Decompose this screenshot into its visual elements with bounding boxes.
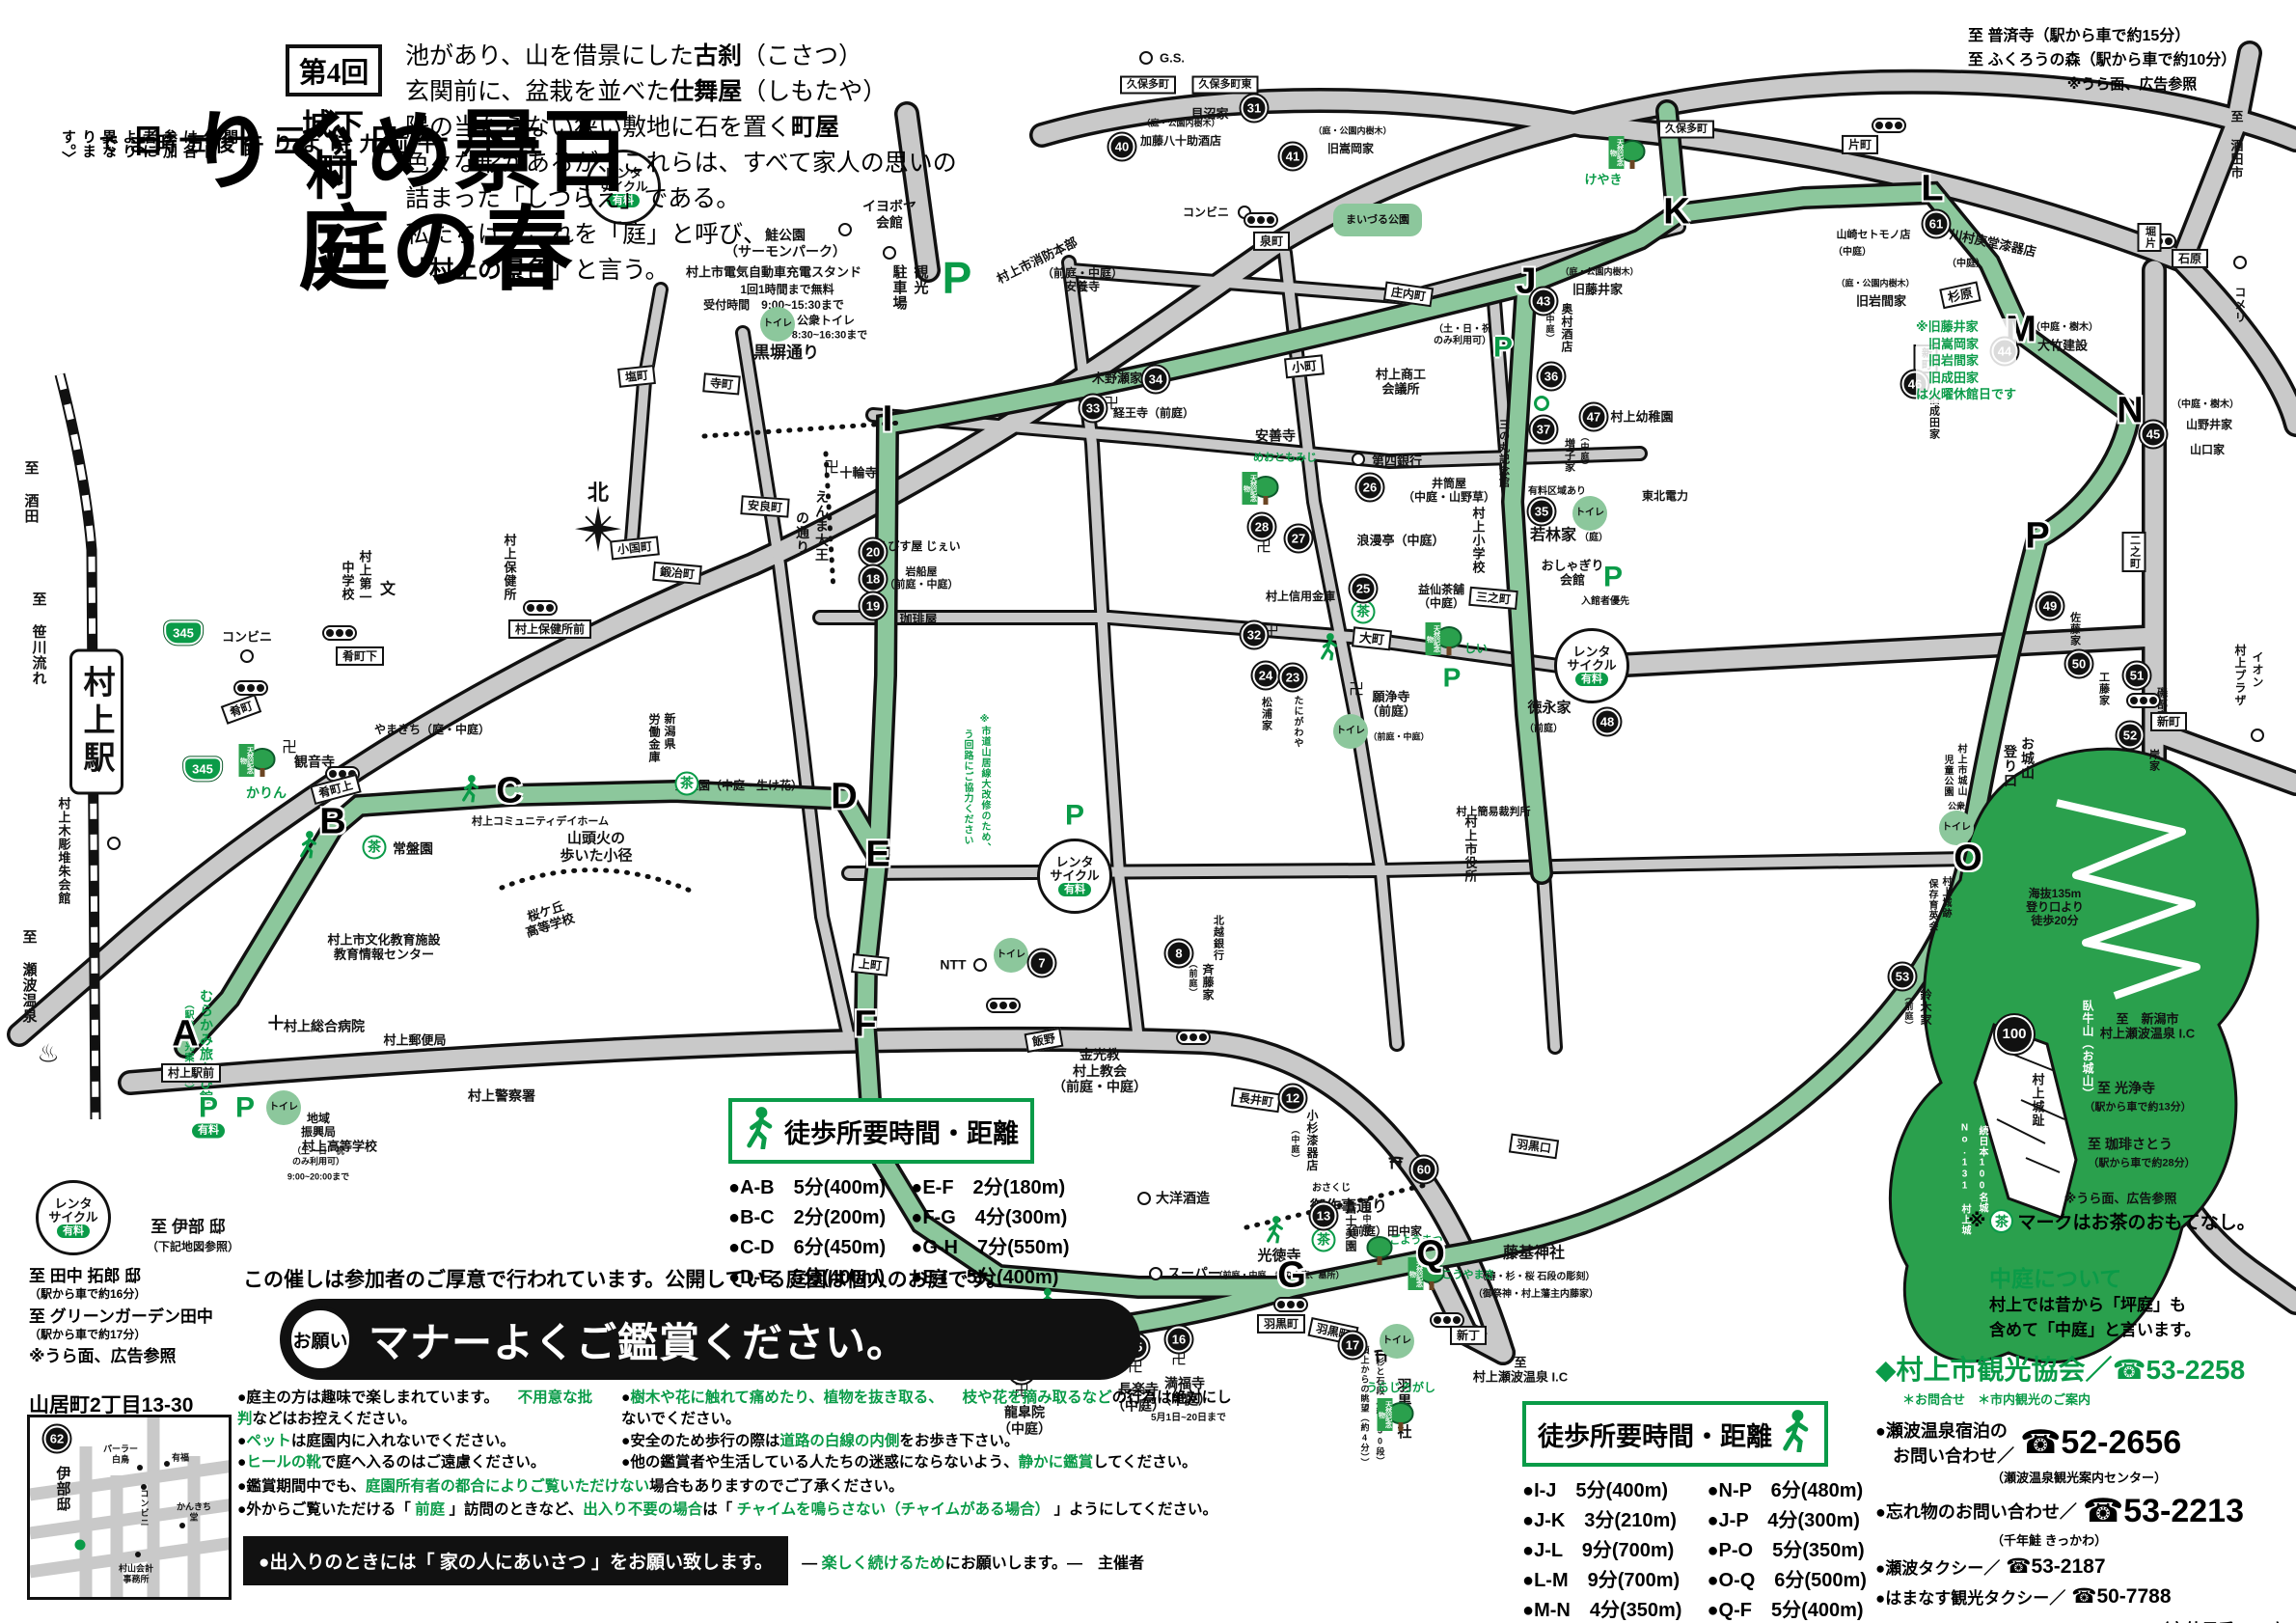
map-label: コンビニ <box>1183 206 1229 219</box>
road-sign: 三之町 <box>1468 587 1518 610</box>
map-label: 村上市文化教育施設 教育情報センター <box>327 933 440 963</box>
road-sign: 安良町 <box>740 495 789 518</box>
map-label: （前庭） <box>1524 724 1563 735</box>
map-label-green: かりん <box>246 785 287 802</box>
walk-time-entry: ●P-O 5分(350m) <box>1707 1536 1866 1566</box>
hot-spring-icon: ♨ <box>37 1039 59 1069</box>
road-sign: 鍛冶町 <box>652 562 702 585</box>
route-point-P: P <box>2025 515 2049 559</box>
map-label: 続日本100名城 <box>1977 1126 1986 1214</box>
map-label: 村上コミュニティデイホーム <box>472 816 609 829</box>
map-label: 至 笹川流れ <box>32 591 46 686</box>
map-label: 大竹建設 <box>2037 338 2088 352</box>
route-point-B: B <box>319 801 345 844</box>
left-access-notes: 至 田中 拓郎 邸（駅から車で約16分）至 グリーンガーデン田中（駅から車で約1… <box>29 1266 213 1367</box>
map-label: （庭・公園内樹木） <box>1141 119 1219 129</box>
site-marker-60: 60 <box>1411 1157 1437 1183</box>
map-label: 安善寺 <box>1255 428 1296 445</box>
route-point-C: C <box>496 770 522 813</box>
poi-circle <box>107 837 121 850</box>
map-label-green: むらかみ旅なび館 <box>200 989 213 1105</box>
map-label: 至 伊部 邸 <box>150 1218 225 1237</box>
walker-icon <box>1319 632 1340 666</box>
map-label: 村上郵便局 <box>383 1032 446 1047</box>
site-marker-32: 32 <box>1242 622 1268 648</box>
toilet-icon: トイレ <box>266 1090 301 1125</box>
map-label: コンビニ <box>140 1489 149 1527</box>
access-note: （駅から車で約16分） <box>29 1287 213 1303</box>
map-label: 村上城趾 <box>2032 1073 2044 1127</box>
poi-circle <box>240 649 254 663</box>
map-label: 至 村上瀬波温泉 I.C <box>1473 1356 1568 1386</box>
contact-block: ◆村上市観光協会／☎53-2258 ＊お問合せ ＊市内観光のご案内 ●瀬波温泉宿… <box>1875 1349 2292 1623</box>
site-marker-18: 18 <box>861 566 887 592</box>
greeting-footer: ●出入りのときには「 家の人にあいさつ 」をお願い致します。 ― 楽しく続けるた… <box>243 1536 1144 1585</box>
route-point-D: D <box>831 776 857 819</box>
map-label: 村上城跡 <box>1940 876 1950 919</box>
walk-time-entry: ●J-P 4分(300m) <box>1707 1506 1866 1536</box>
association-name: 村上市観光協会／ <box>1897 1355 2113 1385</box>
temple-icon: 卍 <box>1171 1352 1187 1370</box>
map-label: 至 酒田 <box>24 460 39 524</box>
tree-icon: 天然記念物 <box>1253 476 1279 505</box>
site-marker-17: 17 <box>1340 1333 1366 1359</box>
poi-circle <box>2233 256 2247 269</box>
map-label: 加藤八十助酒店 <box>1140 134 1221 148</box>
map-label: 鈴木家 <box>1920 989 1931 1027</box>
map-label: 労働金庫 <box>648 713 660 763</box>
route-point-F: F <box>854 1004 876 1047</box>
contact-row: ●瀬波タクシー／☎53-2187 <box>1875 1554 2292 1579</box>
map-label: 斉藤家 <box>1202 964 1214 1002</box>
poi-circle <box>1139 51 1153 65</box>
toilet-icon: トイレ <box>1380 1324 1414 1359</box>
map-label: 大洋酒造 <box>1156 1191 1210 1207</box>
tea-note-text: マークはお茶のおもてなし。 <box>2017 1208 2255 1234</box>
route-point-N: N <box>2117 390 2143 433</box>
traffic-signal-icon <box>1176 1030 1211 1045</box>
map-label: 村上簡易裁判所 <box>1457 807 1531 819</box>
route-point-E: E <box>865 834 889 877</box>
tree-icon: 天然記念物 <box>1388 1402 1414 1431</box>
site-marker-50: 50 <box>2066 651 2092 677</box>
map-label: 三の丸記念館 <box>1498 419 1509 488</box>
site-marker-28: 28 <box>1249 514 1275 540</box>
walk-time-entry: ●B-C 2分(200m) <box>728 1203 886 1233</box>
site-marker-23: 23 <box>1280 665 1306 691</box>
walk-time-legend-2: 徒歩所要時間・距離 ●I-J 5分(400m)●J-K 3分(210m)●J-L… <box>1522 1401 1867 1623</box>
site-marker-7: 7 <box>1029 950 1055 977</box>
map-label: 村上信用金庫 <box>1266 590 1335 603</box>
route-point-K: K <box>1663 191 1689 234</box>
map-label: 旧嵩岡家 <box>1327 142 1374 155</box>
torii-icon <box>1388 1156 1405 1176</box>
walk-time-entry: ●N-P 6分(480m) <box>1707 1476 1866 1506</box>
school-icon: 文 <box>380 582 396 600</box>
traffic-signal-icon <box>2126 693 2161 708</box>
map-label: 村上第一 <box>359 550 371 604</box>
walk-time-entry: ●M-N 4分(350m) <box>1522 1596 1681 1623</box>
map-label: 若林家 <box>1530 528 1576 546</box>
map-label: 浪漫亭（中庭） <box>1356 533 1444 547</box>
manner-banner: お願い マナーよくご鑑賞ください。 <box>280 1299 1140 1380</box>
poi-circle <box>1352 453 1365 466</box>
road-sign: 肴町下 <box>336 646 384 666</box>
intro-paragraph: 池があり、山を借景にした古刹（こさつ）玄関前に、盆栽を並べた仕舞屋（しもたや）陽… <box>405 39 1023 289</box>
map-label: おさくじ <box>1312 1183 1351 1195</box>
toilet-icon: トイレ <box>994 938 1028 973</box>
tea-service-icon: 茶 <box>675 772 699 796</box>
organizer-note: ― 楽しく続けるためにお願いします。― 主催者 <box>802 1550 1144 1573</box>
traffic-signal-icon <box>523 600 558 616</box>
parking-icon: P <box>1443 661 1462 693</box>
location-dot <box>75 1540 86 1551</box>
road-sign: 堀片 <box>2138 223 2162 252</box>
site-marker-13: 13 <box>1311 1203 1337 1229</box>
map-label: （前庭） <box>1189 959 1197 998</box>
road-sign: 片町 <box>1842 135 1878 154</box>
map-label: （中庭・樹木） <box>2172 399 2239 411</box>
street-name-label: 黒塀通り <box>753 344 819 363</box>
traffic-signal-icon <box>1244 212 1278 228</box>
inset-map: 62伊部邸パーラー 白鳥有福コンビニかんきち堂村山会計 事務所 <box>27 1415 232 1600</box>
site-marker-24: 24 <box>1253 663 1279 689</box>
road-sign: 村上駅前 <box>161 1063 221 1083</box>
poi-dot <box>135 1552 141 1557</box>
banner-text: マナーよくご鑑賞ください。 <box>369 1310 908 1369</box>
site-marker-53: 53 <box>1890 964 1916 990</box>
map-label: 松浦家 <box>1261 697 1271 731</box>
poi-dot <box>164 1461 170 1467</box>
site-marker-49: 49 <box>2037 593 2064 619</box>
tea-service-icon: 茶 <box>1312 1228 1336 1252</box>
map-label: 山崎セトモノ店 <box>1837 230 1911 242</box>
legend-title: 徒歩所要時間・距離 <box>784 1113 1019 1150</box>
map-label-green: こうやまき <box>1442 1270 1495 1282</box>
map-label: （中庭） <box>1580 432 1589 471</box>
request-badge: お願い <box>287 1307 353 1372</box>
site-marker-19: 19 <box>861 593 887 619</box>
route-shield: 345 <box>183 756 222 781</box>
map-label: 北越銀行 <box>1213 915 1223 961</box>
tea-note-prefix: ※ <box>1968 1210 1985 1232</box>
map-label-green: しい <box>1464 642 1488 655</box>
area-code: 〈市外局番 0254〉 <box>1875 1616 2292 1623</box>
site-marker-52: 52 <box>2118 723 2144 749</box>
map-label: やまきち（庭・中庭） <box>374 723 490 736</box>
route-point-A: A <box>172 1013 198 1057</box>
site-marker-31: 31 <box>1242 96 1268 122</box>
event-hours-note: 〈時間・休日は各参加者により異なります。〉 <box>58 129 260 166</box>
tree-icon: 天然記念物 <box>1436 626 1462 655</box>
contact-row: ●瀬波温泉宿泊の お問い合わせ／☎52-2656（瀬波温泉観光案内センター） <box>1875 1417 2292 1486</box>
site-marker-35: 35 <box>1529 499 1555 525</box>
site-marker-61: 61 <box>1924 211 1950 237</box>
map-label: 至 珈琲さとう <box>2088 1137 2173 1153</box>
walk-time-entry: ●G-H 7分(550m) <box>911 1233 1069 1263</box>
map-label: 村上高等学校 <box>302 1139 377 1153</box>
map-label: 至 光浄寺 <box>2097 1081 2155 1097</box>
road-sign: 泉町 <box>1253 232 1290 251</box>
map-label: （前庭・中庭） <box>1368 732 1429 743</box>
walker-icon <box>1265 1215 1286 1249</box>
map-label: 第四銀行 <box>1372 454 1422 468</box>
map-label: ※うら面、広告参照 <box>2064 1191 2177 1205</box>
map-label: 村上総合病院 <box>284 1019 365 1035</box>
site-marker-41: 41 <box>1280 144 1306 170</box>
road-sign: 石原 <box>2172 249 2208 268</box>
map-label: 新潟県 <box>664 713 675 751</box>
site-marker-12: 12 <box>1280 1086 1306 1112</box>
site-marker-48: 48 <box>1595 709 1621 735</box>
map-label: 村上警察署 <box>468 1088 535 1105</box>
traffic-signal-icon <box>1872 118 1906 133</box>
map-label: （庭） <box>1579 533 1608 544</box>
map-label: 公衆トイレ <box>797 314 855 327</box>
map-label: 有福 <box>172 1453 189 1464</box>
walker-icon <box>298 830 319 864</box>
map-label: かんきち堂 <box>177 1501 211 1522</box>
walk-time-entry: ●I-J 5分(400m) <box>1522 1476 1681 1506</box>
parking-icon: P <box>1493 330 1513 364</box>
temple-icon: 卍 <box>824 460 839 479</box>
map-label: 中学校 <box>342 561 354 601</box>
toilet-icon: トイレ <box>760 307 795 342</box>
map-label: NTT <box>940 957 966 974</box>
walker-icon <box>1780 1409 1813 1459</box>
map-label: （中庭） <box>1947 259 1985 270</box>
map-label-green: めおともみじ <box>1253 453 1317 465</box>
map-label-green: ※市道山居線大改修のため、 <box>979 714 989 853</box>
map-label: 至 瀬波温泉 <box>22 929 37 1024</box>
map-label: 100 <box>1995 1015 2034 1054</box>
road-sign: 新丁 <box>1450 1326 1487 1345</box>
walk-time-entry: ●O-Q 6分(500m) <box>1707 1566 1866 1596</box>
diamond-icon: ◆ <box>1875 1355 1897 1385</box>
street-name-label: えんま大王 <box>815 490 829 563</box>
site-marker-25: 25 <box>1351 576 1377 602</box>
map-label: （駅から車で約13分） <box>2084 1102 2191 1114</box>
map-label: 井筒屋 （中庭・山野草） <box>1403 477 1495 504</box>
access-note: 至 田中 拓郎 邸 <box>29 1266 213 1287</box>
map-label: 金光教 村上教会 （前庭・中庭） <box>1052 1047 1147 1095</box>
walk-time-entry: ●F-G 4分(300m) <box>911 1203 1069 1233</box>
road-sign: 村上保健所前 <box>508 619 591 639</box>
access-note: 至 普済寺（駅から車で約15分） <box>1968 25 2296 49</box>
map-label: 山野井家 <box>2186 418 2232 431</box>
site-marker-45: 45 <box>2141 422 2167 448</box>
map-label: 増子家 <box>1564 438 1574 473</box>
road-sign: 上町 <box>851 953 889 977</box>
poi-circle <box>1149 1267 1162 1280</box>
map-label: 8:30~16:30まで <box>792 330 868 343</box>
route-shield: 345 <box>164 620 203 645</box>
murakami-spring-garden-map: 至 酒田至 笹川流れ至 瀬波温泉♨村上駅村上木彫堆朱会館むらかみ旅なび館（駅前観… <box>0 0 2296 1623</box>
road-sign: 小町 <box>1284 354 1325 378</box>
walk-time-entry: ●C-D 6分(450m) <box>728 1233 886 1263</box>
road-sign: 久保多町 <box>1658 121 1714 139</box>
map-label: 冨士美園 <box>1345 1202 1356 1252</box>
toilet-icon: トイレ <box>1572 496 1607 531</box>
street-name-label: 山頭火の 歩いた小径 <box>560 830 632 864</box>
map-label: 東北電力 <box>1642 489 1688 503</box>
map-label: えびす屋 じぇい <box>876 539 960 553</box>
site-marker-8: 8 <box>1166 941 1192 967</box>
parking-icon: P <box>199 1090 218 1124</box>
site-marker-33: 33 <box>1080 396 1107 422</box>
tea-service-icon: 茶 <box>363 836 387 860</box>
site-marker-20: 20 <box>861 539 887 565</box>
access-note: 至 グリーンガーデン田中 <box>29 1307 213 1328</box>
site-marker-62: 62 <box>44 1426 70 1452</box>
site-marker-26: 26 <box>1357 475 1383 501</box>
road-sign: 久保多町東 <box>1192 76 1259 95</box>
map-label: 村上市役所 <box>1464 815 1477 883</box>
parking-icon: P <box>1065 798 1084 832</box>
station-label: 村上駅 <box>69 649 123 795</box>
top-right-access-notes: 至 普済寺（駅から車で約15分）至 ふくろうの森（駅から車で約10分）※うら面、… <box>1968 25 2296 96</box>
rental-cycle-badge: レンタサイクル有料 <box>36 1180 111 1255</box>
parking-icon: P <box>235 1090 255 1124</box>
tuesday-closed-note: ※旧藤井家 旧嵩岡家 旧岩間家 旧成田家は火曜休館日です <box>1916 318 2016 403</box>
temple-icon: 卍 <box>1256 539 1271 558</box>
fee-badge: 有料 <box>192 1124 225 1139</box>
association-sub: ＊お問合せ ＊市内観光のご案内 <box>1902 1389 2292 1408</box>
road-sign: 新町 <box>2150 712 2187 731</box>
route-point-G: G <box>1277 1254 1306 1298</box>
access-note: （駅から車で約17分） <box>29 1328 213 1343</box>
greeting-box: ●出入りのときには「 家の人にあいさつ 」をお願い致します。 <box>243 1536 788 1585</box>
map-label: 村上保健所 <box>504 534 516 601</box>
map-label: 9:00~20:00まで <box>287 1172 349 1183</box>
map-label: 木野瀬家 <box>1092 371 1142 385</box>
poi-circle <box>1137 1192 1151 1205</box>
map-label: G.S. <box>1160 50 1185 65</box>
poi-dot <box>137 1465 143 1471</box>
tree-icon: 天然記念物 <box>250 748 276 777</box>
map-label-green: うらじろがし <box>1366 1381 1435 1394</box>
road-sign: 塩町 <box>617 365 656 388</box>
map-label: 常盤園 <box>393 841 433 858</box>
traffic-signal-icon <box>986 998 1021 1013</box>
map-label-green: けやき <box>1584 172 1622 186</box>
map-label: 奥村酒店 <box>1561 303 1572 353</box>
poi-dot <box>179 1523 185 1528</box>
map-label: 村上小学校 <box>1472 507 1485 574</box>
map-label: 徳永家 <box>1527 700 1571 717</box>
map-label: （中庭） <box>1291 1125 1299 1164</box>
map-label: 村上幼稚園 <box>1610 409 1673 424</box>
map-label: 有料区域あり <box>1528 486 1586 498</box>
event-notice: この催しは参加者のご厚意で行われています。公開している庭園は個人のお庭です。 <box>243 1264 1007 1293</box>
map-label: コンビニ <box>222 629 272 644</box>
map-label: 藤基神社 <box>1503 1246 1565 1264</box>
map-label: （庭・公園内樹木） <box>1313 126 1391 137</box>
road-sign: 大町 <box>1352 626 1392 650</box>
map-label: 村上市城山 <box>1955 744 1965 797</box>
site-marker-27: 27 <box>1286 526 1312 552</box>
map-label: たにがわや <box>1292 696 1301 749</box>
map-label: パーラー 白鳥 <box>103 1444 138 1464</box>
map-label: 山口家 <box>2190 443 2225 456</box>
tea-mark-note: ※ 茶 マークはお茶のおもてなし。 <box>1968 1208 2255 1234</box>
walk-time-entry: ●J-K 3分(210m) <box>1522 1506 1681 1536</box>
walker-icon <box>744 1106 777 1156</box>
site-marker-36: 36 <box>1539 364 1565 390</box>
map-label: （中庭） <box>1833 247 1872 259</box>
map-label: 経王寺（前庭） <box>1113 406 1194 420</box>
chuniwa-body: 村上では昔から「坪庭」も 含めて「中庭」と言います。 <box>1989 1293 2200 1342</box>
map-label: 益仙茶舗 （中庭） <box>1418 583 1464 610</box>
map-label: イオン <box>2252 651 2263 689</box>
hospital-icon: ＋ <box>266 1013 286 1036</box>
map-label: （庭・公園内樹木） <box>1560 267 1638 278</box>
map-label: 入館者優先 <box>1581 596 1629 608</box>
map-label: 願浄寺 （前庭） <box>1366 690 1416 720</box>
parking-icon: P <box>1603 560 1623 593</box>
traffic-signal-icon <box>1273 1297 1308 1312</box>
map-label: 岸家 <box>2148 749 2159 772</box>
street-name-label: の通り <box>796 511 809 555</box>
tea-service-icon: 茶 <box>1352 600 1376 624</box>
map-label: （中庭・樹木） <box>2031 322 2098 334</box>
tea-service-icon: 茶 <box>1989 1209 2013 1233</box>
site-marker-51: 51 <box>2124 663 2150 689</box>
traffic-signal-icon <box>322 625 357 641</box>
site-marker-37: 37 <box>1531 417 1557 443</box>
event-number: 第4回 <box>286 44 382 96</box>
road-sign: 久保多町 <box>1120 76 1176 95</box>
map-label: 佐藤家 <box>2069 612 2080 646</box>
walk-time-entry: ●E-F 2分(180m) <box>911 1173 1069 1203</box>
walk-time-entry: ●A-B 5分(400m) <box>728 1173 886 1203</box>
route-point-I: I <box>883 399 893 442</box>
rental-cycle-badge: レンタサイクル有料 <box>1554 628 1629 703</box>
access-note: 至 ふくろうの森（駅から車で約10分） <box>1968 49 2296 73</box>
legend-title: 徒歩所要時間・距離 <box>1538 1416 1772 1453</box>
manner-rules: ●庭主の方は趣味で楽しまれています。 不用意な批判などはお控えください。●ペット… <box>237 1388 1318 1522</box>
walk-time-entry: ●L-M 9分(700m) <box>1522 1566 1681 1596</box>
map-label: 工藤家 <box>2098 672 2109 706</box>
route-point-L: L <box>1921 168 1943 211</box>
toilet-icon: トイレ <box>1333 714 1368 749</box>
map-label: （下記地図参照） <box>147 1240 239 1253</box>
site-marker-47: 47 <box>1581 404 1607 430</box>
map-label: おしゃぎり 会館 <box>1541 559 1603 589</box>
map-label: 旧岩間家 <box>1856 293 1906 308</box>
map-label: 旧藤井家 <box>1572 282 1623 296</box>
site-marker-16: 16 <box>1166 1327 1192 1353</box>
temple-icon: 卍 <box>1349 682 1364 701</box>
map-label: 村上商工 会議所 <box>1376 368 1426 398</box>
walk-time-entry: ●J-L 9分(700m) <box>1522 1536 1681 1566</box>
route-point-O: O <box>1954 838 1982 881</box>
road-sign: 羽黒町 <box>1257 1314 1305 1334</box>
site-marker-34: 34 <box>1143 367 1169 393</box>
map-label: （前庭） <box>1904 992 1913 1031</box>
poi-circle <box>973 958 987 972</box>
map-label: （御祭神・村上藩主内藤家） <box>1473 1289 1599 1301</box>
map-label: 臥牛山（お城山） <box>2082 1000 2093 1100</box>
chuniwa-title: 中庭について <box>1989 1260 2200 1293</box>
map-label: 地域 振興局 <box>301 1112 336 1139</box>
map-label: 十輪寺 <box>839 465 877 480</box>
map-label: 至 新潟市 村上瀬波温泉 I.C <box>2100 1012 2195 1042</box>
map-label: 小杉漆器店 <box>1306 1110 1318 1172</box>
access-note: ※うら面、広告参照 <box>1968 73 2296 96</box>
map-label: 海抜135m 登り口より 徒歩20分 <box>2026 887 2084 927</box>
site-marker-43: 43 <box>1531 289 1557 315</box>
